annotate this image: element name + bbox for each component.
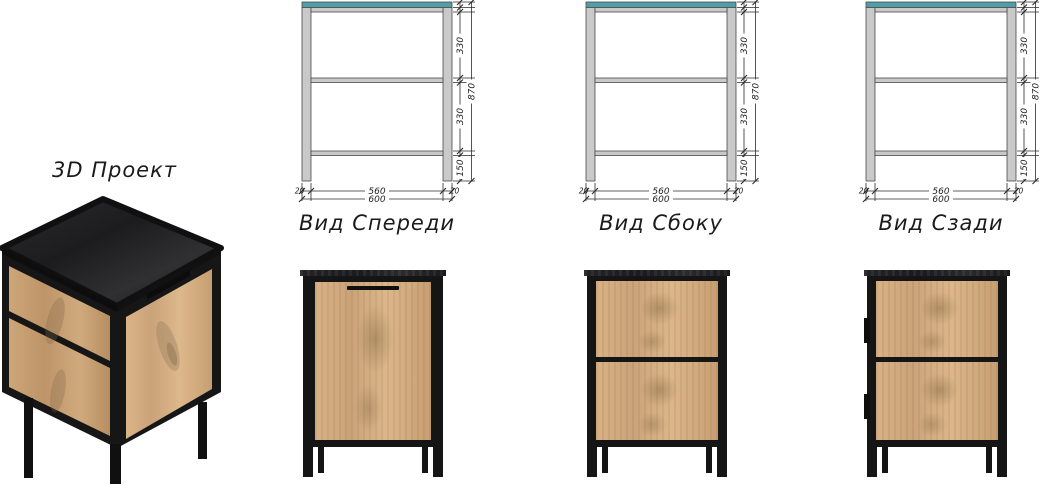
dim-left-leg-width: 20 <box>295 186 305 195</box>
render-legs <box>584 447 730 478</box>
cabinet-leg-left <box>24 398 33 478</box>
technical-drawing: 330 330 150 870 20 560 20 600 <box>581 0 766 205</box>
view-label-side: Вид Сбоку <box>571 211 751 235</box>
render-legs <box>300 447 446 478</box>
frame-rail-top <box>311 8 443 13</box>
render-leg-outer-left <box>303 447 313 477</box>
dim-left-leg-width: 20 <box>579 186 589 195</box>
technical-drawing-front: 330 330 150 870 20 560 20 600 <box>297 0 482 205</box>
technical-drawing-rear: 330 330 150 870 20 560 20 600 <box>861 0 1046 205</box>
render-leg-outer-left <box>587 447 597 477</box>
cabinet-leg-front <box>110 444 121 484</box>
dim-right-leg-width: 20 <box>1014 186 1024 195</box>
cabinet-leg-right <box>198 402 207 459</box>
render-leg-inner-right <box>986 447 992 473</box>
render-door-panel <box>315 282 431 440</box>
tabletop-panel <box>302 2 452 8</box>
dim-top-section: 330 <box>740 37 750 54</box>
dim-left-leg-width: 20 <box>859 186 869 195</box>
frame-leg-left <box>586 8 595 182</box>
frame-leg-right <box>1007 8 1016 182</box>
frame-rail-middle <box>311 78 443 83</box>
dim-top-section: 330 <box>456 37 466 54</box>
dim-total-height: 870 <box>751 83 761 100</box>
render-rear-panels <box>876 281 998 440</box>
dim-right-leg-width: 20 <box>734 186 744 195</box>
frame-rail-middle <box>875 78 1007 83</box>
frame-rail-bottom <box>595 151 727 156</box>
render-frame <box>867 276 1007 447</box>
dim-total-width: 600 <box>652 195 669 205</box>
frame-rail-middle <box>595 78 727 83</box>
render-leg-inner-left <box>318 447 324 473</box>
view-label-front: Вид Спереди <box>287 211 467 235</box>
render-legs <box>864 447 1010 478</box>
tabletop-panel <box>586 2 736 8</box>
dim-bottom-section: 330 <box>456 108 466 125</box>
frame-leg-left <box>302 8 311 182</box>
frame-leg-right <box>727 8 736 182</box>
tabletop-panel <box>866 2 1016 8</box>
technical-drawing: 330 330 150 870 20 560 20 600 <box>861 0 1046 205</box>
technical-drawing: 330 330 150 870 20 560 20 600 <box>297 0 482 205</box>
render-panel-upper <box>876 281 998 357</box>
render-leg-inner-right <box>422 447 428 473</box>
render-front <box>300 270 446 478</box>
dim-total-height: 870 <box>467 83 477 100</box>
view-column-front: 330 330 150 870 20 560 20 600 Вид Сперед… <box>297 0 482 485</box>
render-frame <box>303 276 443 447</box>
render-leg-inner-left <box>882 447 888 473</box>
render-leg-outer-left <box>867 447 877 477</box>
render-panel-upper <box>596 281 718 357</box>
dim-right-leg-width: 20 <box>450 186 460 195</box>
render-frame <box>587 276 727 447</box>
view-column-side: 330 330 150 870 20 560 20 600 Вид Сбоку <box>581 0 766 485</box>
page-title: 3D Проект <box>52 158 177 182</box>
render-leg-outer-right <box>997 447 1007 477</box>
frame-leg-left <box>866 8 875 182</box>
technical-drawing-side: 330 330 150 870 20 560 20 600 <box>581 0 766 205</box>
frame-rail-bottom <box>875 151 1007 156</box>
render-leg-inner-left <box>602 447 608 473</box>
dim-top-section: 330 <box>1020 37 1030 54</box>
render-door-handle <box>347 286 399 290</box>
render-leg-outer-right <box>717 447 727 477</box>
dim-bottom-section: 330 <box>740 108 750 125</box>
view-label-rear: Вид Сзади <box>851 211 1031 235</box>
cabinet-3d-render <box>0 196 235 485</box>
render-side <box>584 270 730 478</box>
frame-rail-top <box>875 8 1007 13</box>
dim-leg-height: 150 <box>456 159 466 176</box>
render-rear <box>864 270 1010 478</box>
render-panel-lower <box>596 362 718 440</box>
render-side-panels <box>596 281 718 440</box>
dim-leg-height: 150 <box>1020 159 1030 176</box>
dim-total-height: 870 <box>1031 83 1041 100</box>
view-column-rear: 330 330 150 870 20 560 20 600 Вид Сзади <box>861 0 1046 485</box>
project-sheet: 3D Проект <box>0 0 1050 485</box>
dim-total-width: 600 <box>368 195 385 205</box>
dim-bottom-section: 330 <box>1020 108 1030 125</box>
render-hinge-top <box>864 318 870 343</box>
frame-leg-right <box>443 8 452 182</box>
frame-rail-bottom <box>311 151 443 156</box>
render-panel-lower <box>876 362 998 440</box>
dim-leg-height: 150 <box>740 159 750 176</box>
render-leg-outer-right <box>433 447 443 477</box>
render-hinge-bottom <box>864 394 870 419</box>
frame-rail-top <box>595 8 727 13</box>
render-leg-inner-right <box>706 447 712 473</box>
dim-total-width: 600 <box>932 195 949 205</box>
